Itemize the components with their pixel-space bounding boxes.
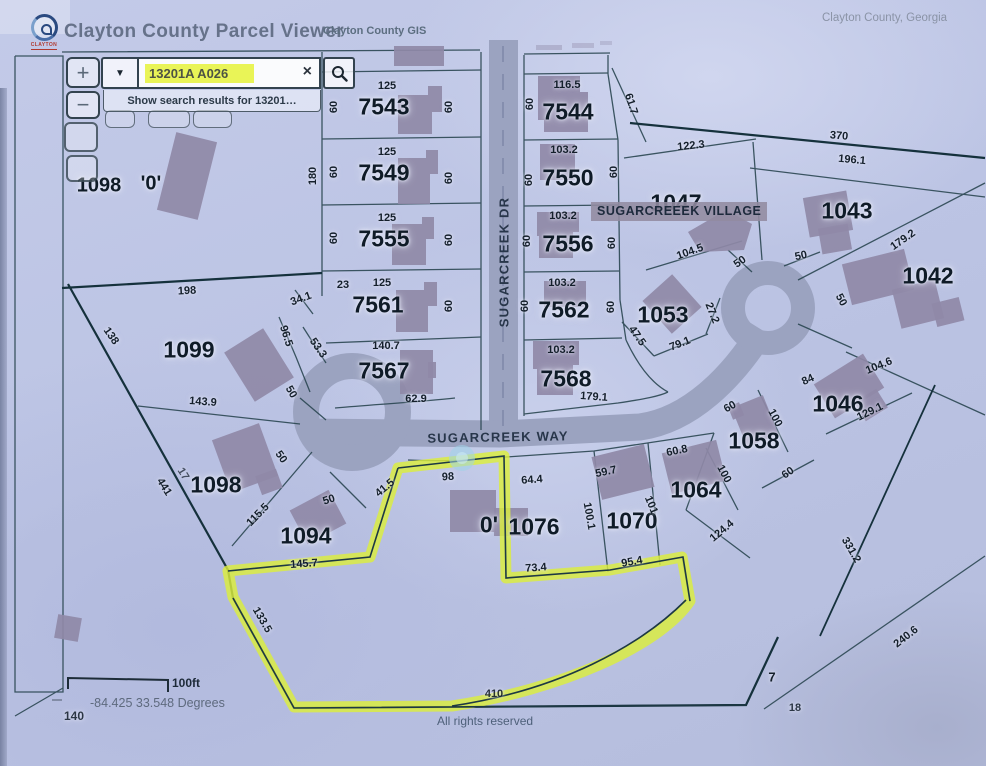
plus-icon: +	[77, 62, 90, 84]
suggestion-tab[interactable]	[148, 110, 190, 128]
suggestion-tab[interactable]	[105, 110, 135, 128]
attribution-text: All rights reserved	[437, 714, 533, 728]
map-tool-button[interactable]	[66, 155, 98, 182]
search-input[interactable]: 13201A A026 ×	[139, 57, 321, 89]
search-button[interactable]	[323, 57, 355, 89]
region-label: Clayton County, Georgia	[822, 12, 947, 24]
map-tool-button[interactable]	[64, 122, 98, 152]
search-suggestion-item[interactable]: Show search results for 13201…	[103, 90, 321, 112]
zoom-out-button[interactable]: −	[66, 91, 100, 119]
chevron-down-icon: ▼	[115, 68, 125, 79]
page-title: Clayton County Parcel Viewer	[64, 21, 344, 43]
photo-edge-shadow	[0, 88, 7, 766]
zoom-in-button[interactable]: +	[66, 57, 100, 88]
parcel-viewer-screenshot: 7543754975557561756775447550755675627568…	[0, 0, 986, 766]
search-widget: ▼ 13201A A026 ×	[101, 57, 355, 89]
clayton-county-logo-icon: CLAYTON	[27, 14, 61, 52]
search-source-dropdown[interactable]: ▼	[101, 57, 139, 89]
clear-search-icon[interactable]: ×	[303, 64, 312, 80]
cursor-coordinates: -84.425 33.548 Degrees	[90, 696, 225, 710]
map-location-marker-core	[456, 452, 468, 464]
search-icon	[331, 65, 348, 82]
minus-icon: −	[77, 94, 90, 116]
gis-subtitle: Clayton County GIS	[323, 25, 426, 37]
search-input-value: 13201A A026	[145, 64, 254, 83]
suggestion-text: Show search results for 13201…	[127, 95, 296, 107]
scale-bar-label: 100ft	[172, 676, 200, 690]
subdivision-label: SUGARCREEEK VILLAGE	[591, 202, 767, 221]
scale-bar	[68, 678, 168, 692]
selected-parcel-highlight[interactable]	[228, 445, 746, 708]
suggestion-tab[interactable]	[193, 110, 232, 128]
